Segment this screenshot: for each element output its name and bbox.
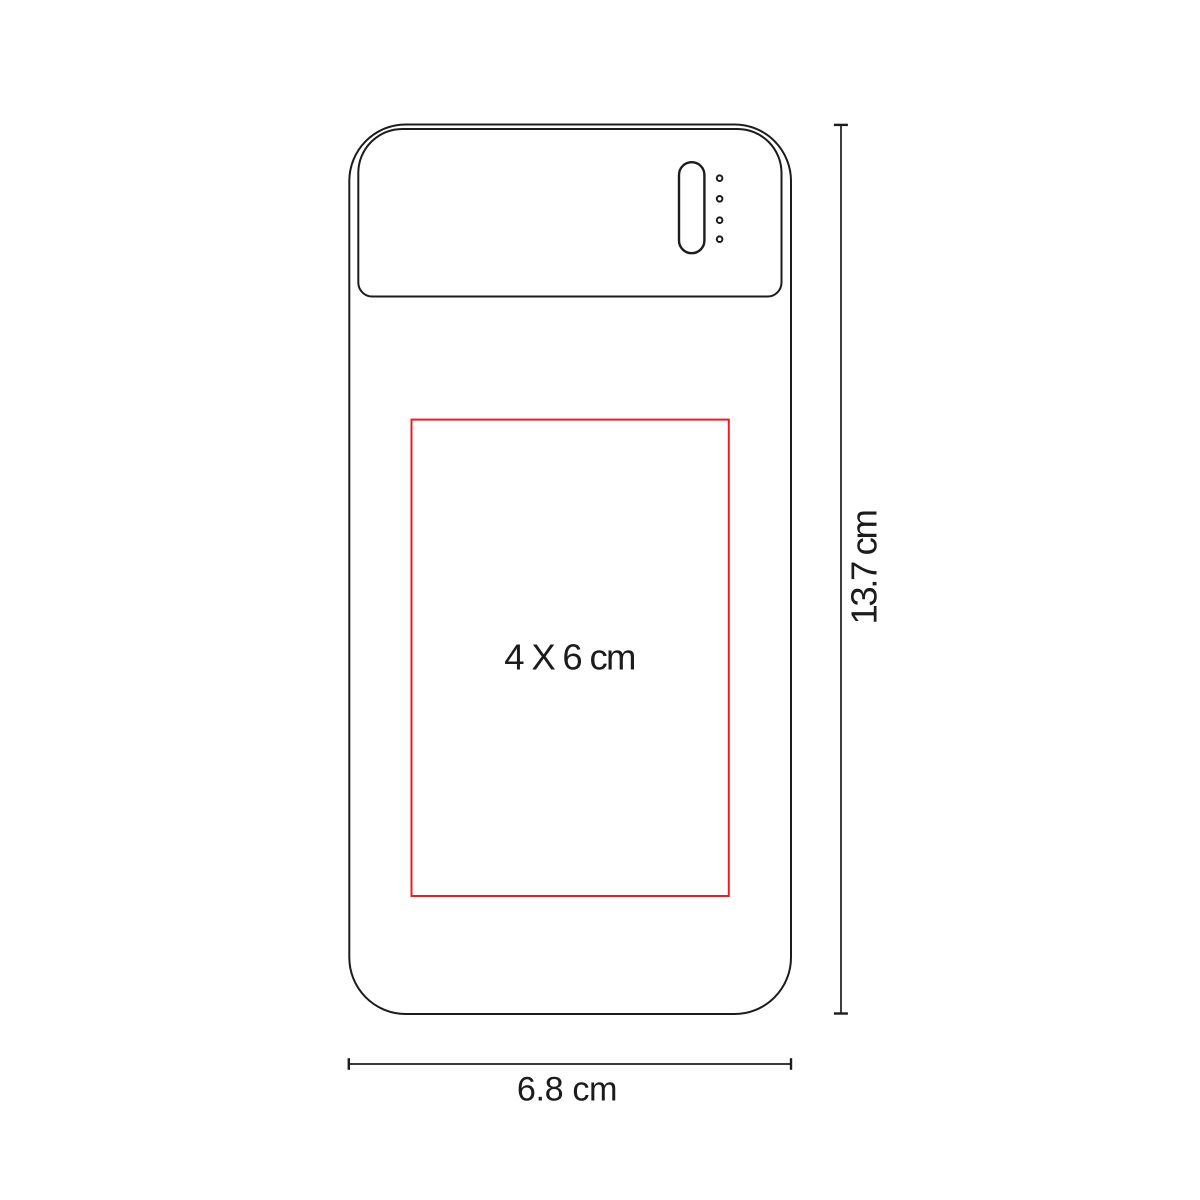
svg-text:6.8 cm: 6.8 cm <box>517 1071 617 1109</box>
svg-text:4 X 6 cm: 4 X 6 cm <box>504 637 634 678</box>
svg-text:13.7 cm: 13.7 cm <box>843 511 884 624</box>
